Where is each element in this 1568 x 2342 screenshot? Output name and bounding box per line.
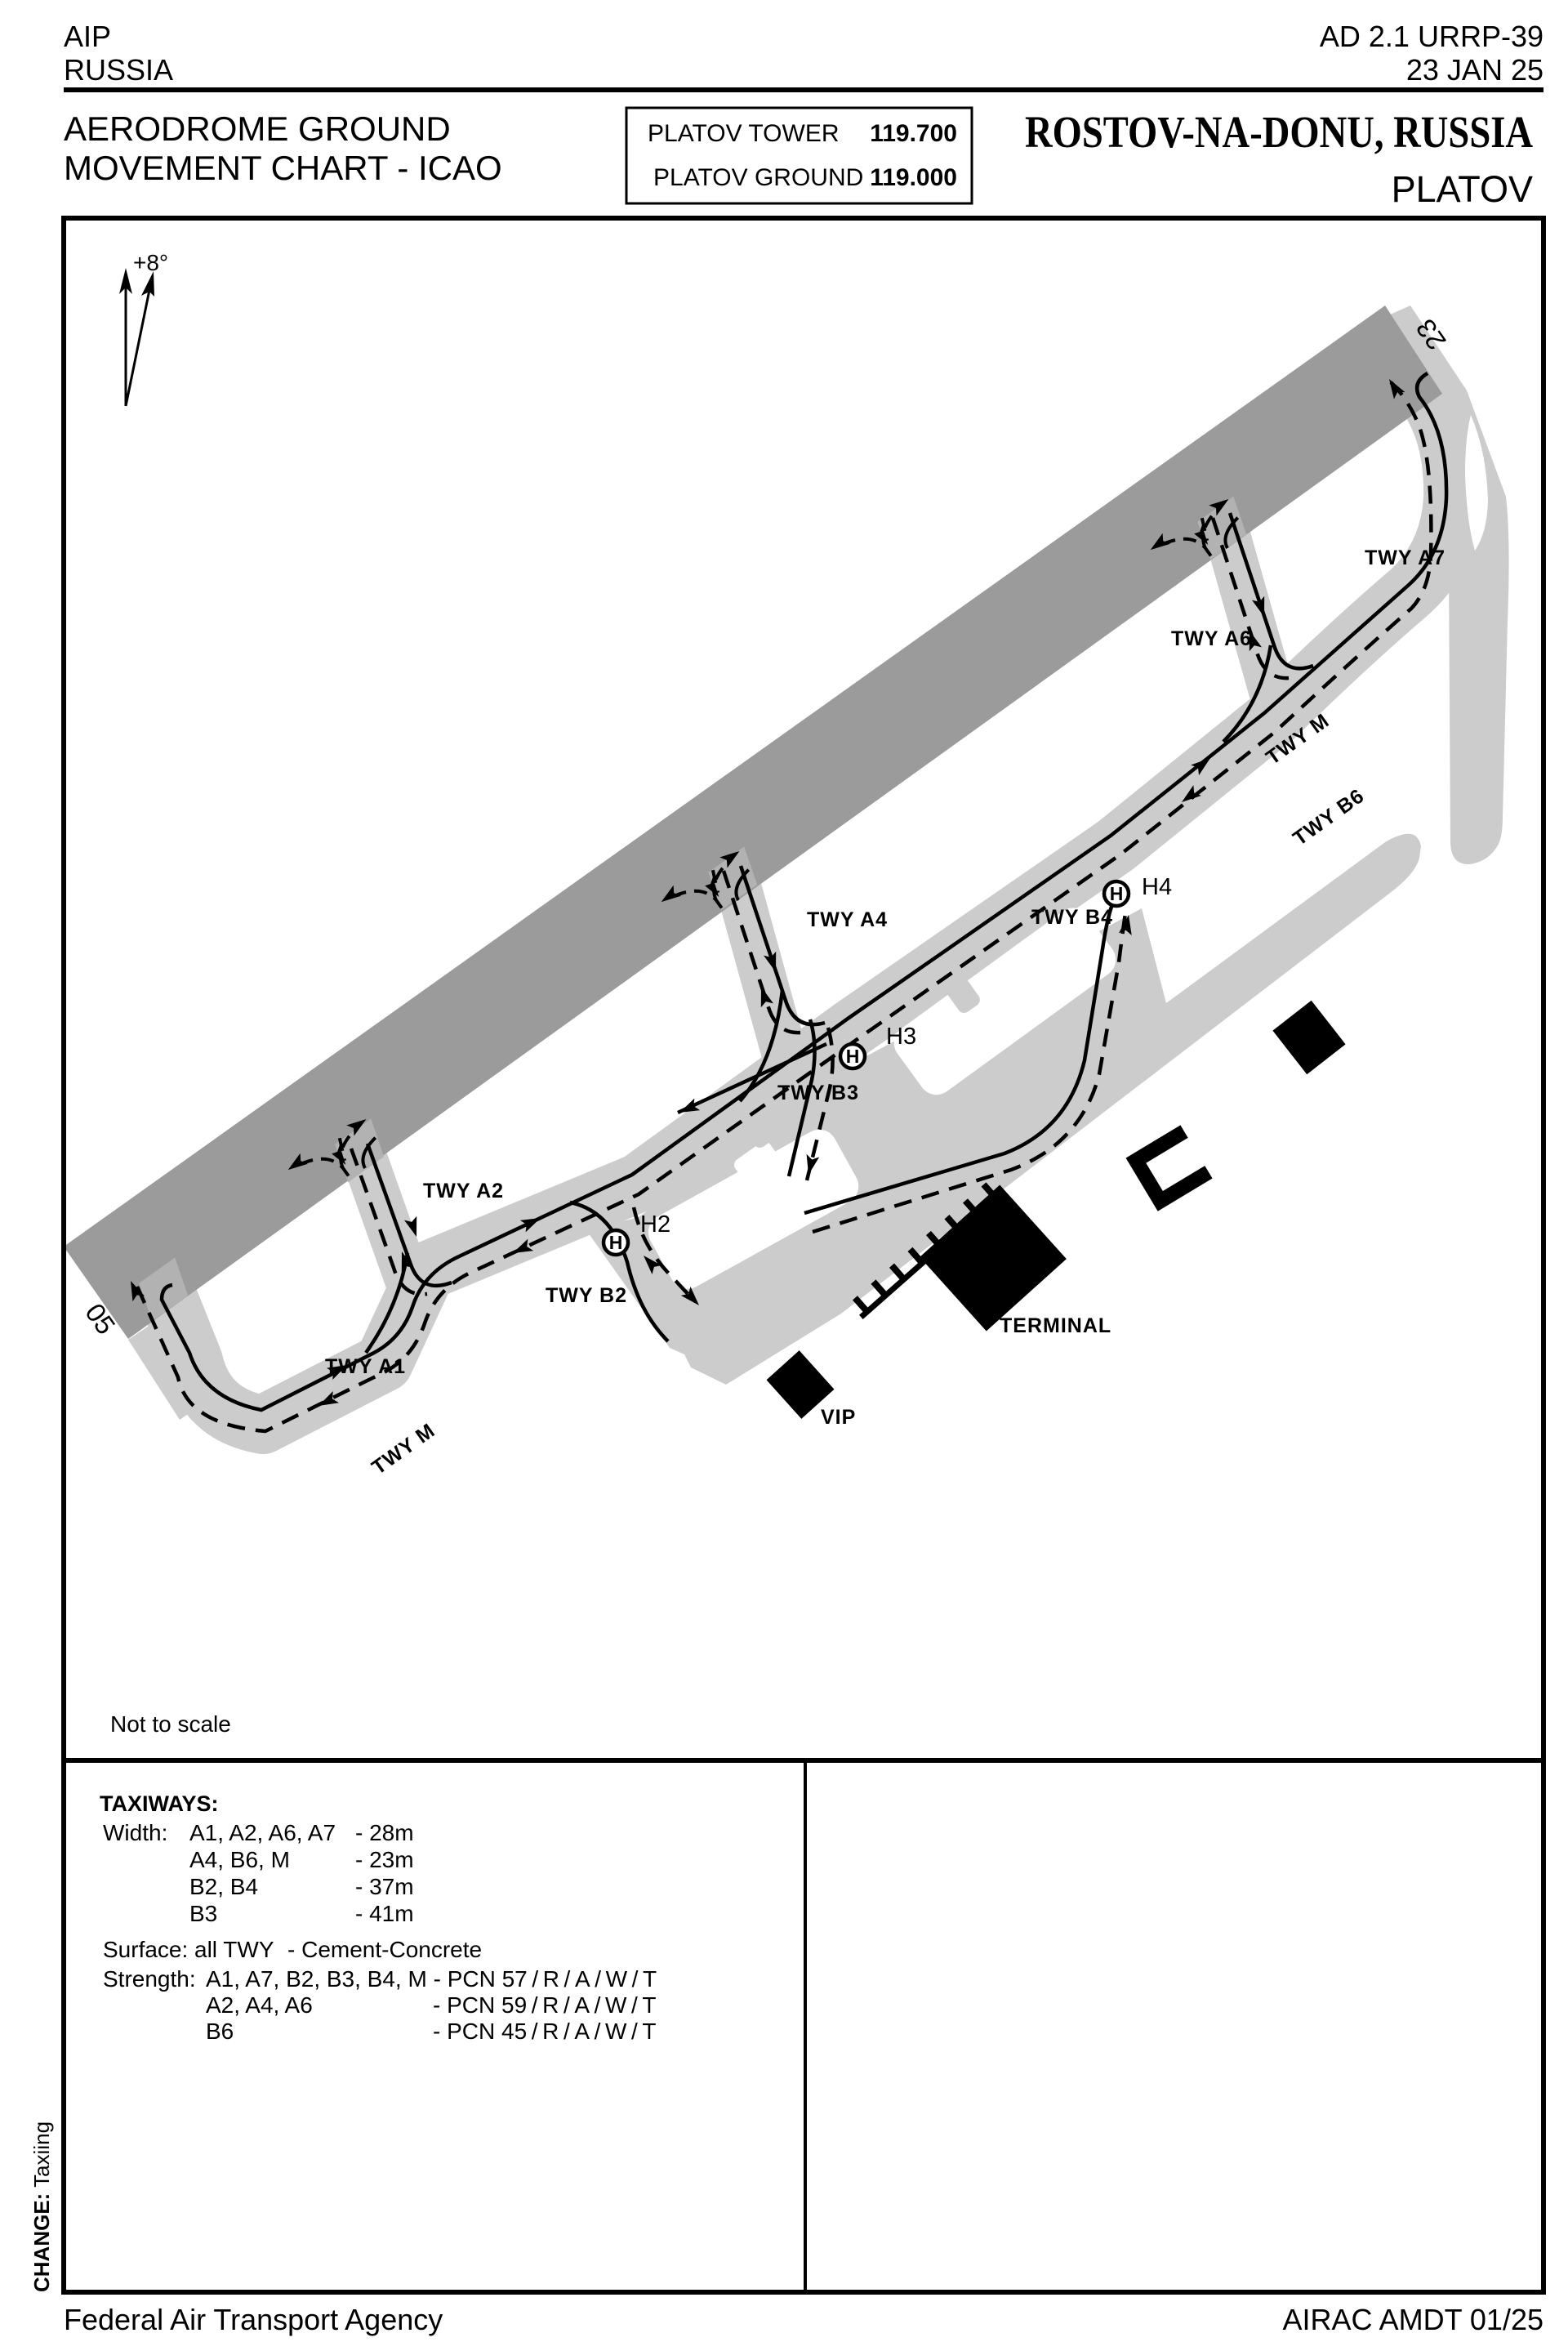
svg-text:PLATOV GROUND: PLATOV GROUND xyxy=(653,164,863,191)
svg-text:Strength:: Strength: xyxy=(103,1966,196,1992)
svg-text:+8°: +8° xyxy=(133,250,168,275)
svg-text:119.700: 119.700 xyxy=(870,120,957,147)
svg-text:Width:: Width: xyxy=(103,1820,167,1845)
svg-text:H2: H2 xyxy=(640,1211,670,1238)
svg-text:B2, B4: B2, B4 xyxy=(189,1874,258,1899)
svg-text:- 41m: - 41m xyxy=(355,1901,414,1926)
svg-text:TWY A2: TWY A2 xyxy=(423,1180,504,1202)
svg-text:H4: H4 xyxy=(1142,874,1172,900)
svg-text:PLATOV TOWER: PLATOV TOWER xyxy=(648,120,840,147)
svg-text:TAXIWAYS:: TAXIWAYS: xyxy=(100,1791,219,1816)
svg-text:TWY A6: TWY A6 xyxy=(1171,627,1252,650)
svg-text:AD 2.1 URRP-39: AD 2.1 URRP-39 xyxy=(1320,20,1543,53)
svg-text:B6: B6 xyxy=(206,2019,234,2044)
svg-text:all TWY: all TWY xyxy=(194,1937,274,1962)
svg-text:B3: B3 xyxy=(189,1901,217,1926)
svg-text:AERODROME GROUND: AERODROME GROUND xyxy=(64,109,451,148)
svg-text:- 28m: - 28m xyxy=(355,1820,414,1845)
svg-text:TWY B3: TWY B3 xyxy=(777,1082,859,1104)
svg-text:A2, A4, A6: A2, A4, A6 xyxy=(206,1992,313,2018)
svg-text:- PCN 45 / R / A / W / T: - PCN 45 / R / A / W / T xyxy=(433,2019,657,2044)
svg-text:H: H xyxy=(609,1232,623,1253)
svg-text:CHANGE: Taxiing: CHANGE: Taxiing xyxy=(29,2121,54,2292)
svg-text:A1, A2, A6, A7: A1, A2, A6, A7 xyxy=(189,1820,336,1845)
svg-text:Surface:: Surface: xyxy=(103,1937,188,1962)
svg-text:Federal Air Transport Agency: Federal Air Transport Agency xyxy=(64,2303,443,2336)
svg-text:TWY A7: TWY A7 xyxy=(1365,546,1445,569)
svg-text:AIRAC AMDT 01/25: AIRAC AMDT 01/25 xyxy=(1283,2303,1543,2336)
svg-text:VIP: VIP xyxy=(821,1406,856,1429)
svg-text:PLATOV: PLATOV xyxy=(1392,168,1533,210)
svg-text:H: H xyxy=(846,1046,860,1067)
svg-text:- PCN 59 / R / A / W / T: - PCN 59 / R / A / W / T xyxy=(433,1992,657,2018)
svg-text:23 JAN 25: 23 JAN 25 xyxy=(1406,53,1543,87)
svg-text:TWY A1: TWY A1 xyxy=(325,1355,406,1378)
svg-text:- 37m: - 37m xyxy=(355,1874,414,1899)
svg-text:MOVEMENT CHART - ICAO: MOVEMENT CHART - ICAO xyxy=(64,149,502,187)
svg-text:TWY A4: TWY A4 xyxy=(807,908,888,931)
svg-text:RUSSIA: RUSSIA xyxy=(64,53,173,87)
svg-text:A4, B6, M: A4, B6, M xyxy=(189,1847,290,1872)
svg-text:TERMINAL: TERMINAL xyxy=(1000,1314,1111,1337)
svg-text:- 23m: - 23m xyxy=(355,1847,414,1872)
svg-text:AIP: AIP xyxy=(64,20,111,53)
svg-text:TWY B4: TWY B4 xyxy=(1031,906,1113,929)
svg-text:- Cement-Concrete: - Cement-Concrete xyxy=(287,1937,482,1962)
svg-text:TWY M: TWY M xyxy=(367,1419,439,1479)
svg-text:ROSTOV-NA-DONU, RUSSIA: ROSTOV-NA-DONU, RUSSIA xyxy=(1025,107,1533,157)
svg-text:A1, A7, B2, B3, B4, M - PCN 57: A1, A7, B2, B3, B4, M - PCN 57 / R / A /… xyxy=(206,1966,657,1992)
svg-text:TWY B6: TWY B6 xyxy=(1289,784,1369,850)
svg-text:H3: H3 xyxy=(886,1024,916,1050)
svg-text:H: H xyxy=(1110,883,1124,904)
svg-text:119.000: 119.000 xyxy=(870,164,957,191)
svg-text:Not to scale: Not to scale xyxy=(110,1711,231,1737)
svg-text:TWY B2: TWY B2 xyxy=(546,1284,627,1307)
